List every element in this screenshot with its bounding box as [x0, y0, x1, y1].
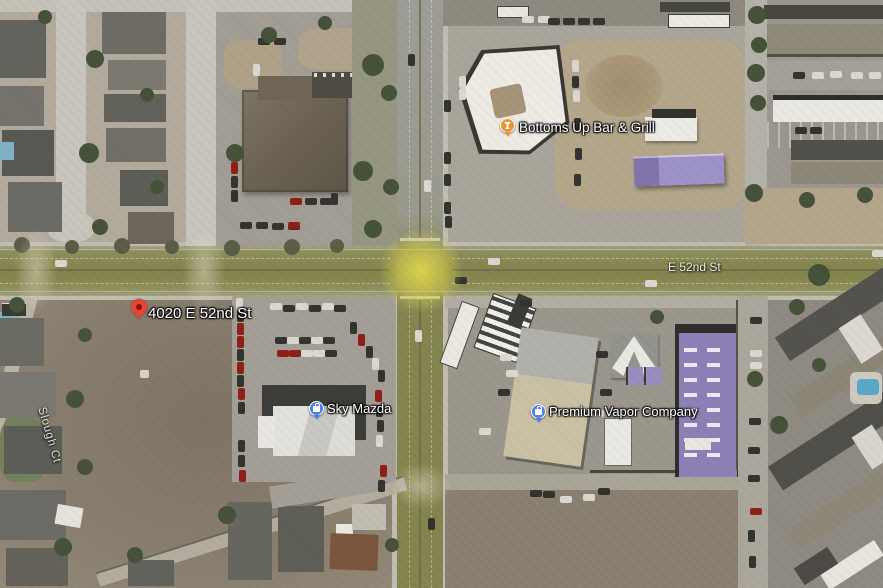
poi-label-sky-mazda[interactable]: Sky Mazda — [327, 402, 391, 415]
glare-spot — [182, 228, 226, 312]
road-label-e-52nd-st: E 52nd St — [668, 261, 721, 273]
apartment-building — [791, 140, 883, 160]
fence — [736, 300, 738, 470]
lane-marking — [419, 0, 421, 238]
building-purple-retail — [634, 153, 725, 186]
house — [108, 60, 166, 90]
trailer — [668, 14, 730, 28]
driveway — [352, 504, 386, 530]
drink-glass-icon — [504, 122, 511, 129]
address-label: 4020 E 52nd St — [148, 306, 251, 321]
poi-label-bottoms-up[interactable]: Bottoms Up Bar & Grill — [519, 121, 655, 135]
house — [104, 94, 166, 122]
trees-layer — [0, 0, 14, 14]
red-pin-icon — [128, 296, 151, 319]
house — [128, 560, 174, 586]
house — [128, 212, 174, 244]
lane-marking — [452, 258, 883, 259]
house — [6, 548, 68, 586]
intersection-glow — [377, 227, 465, 315]
swimming-pool — [0, 142, 14, 160]
house — [0, 86, 44, 126]
pin-pointer — [505, 132, 511, 137]
house — [278, 506, 324, 572]
shopping-bag-icon — [313, 406, 320, 412]
house — [0, 318, 44, 366]
debris — [140, 370, 149, 378]
poi-marker-bottoms-up[interactable] — [500, 118, 515, 133]
shed — [54, 504, 83, 528]
apartment-building — [791, 162, 883, 184]
grass-strip — [352, 0, 397, 246]
poi-marker-sky-mazda[interactable] — [309, 401, 324, 416]
shopping-pin-icon — [531, 404, 546, 419]
apartment-building — [773, 95, 883, 124]
lane-marking — [409, 300, 410, 588]
building-wing — [258, 76, 312, 100]
building-purple-unit — [626, 367, 643, 385]
pin-pointer — [536, 418, 542, 423]
trailer — [497, 6, 529, 18]
shopping-bag-icon — [535, 409, 542, 415]
house — [8, 182, 62, 232]
pin-dot — [135, 303, 143, 311]
lane-marking — [431, 0, 432, 238]
building-purple-unit — [644, 367, 662, 385]
house — [329, 533, 378, 571]
trailer — [660, 2, 730, 12]
satellite-map-canvas[interactable]: Bottoms Up Bar & Grill 4020 E 52nd St E … — [0, 0, 883, 588]
swimming-pool — [857, 379, 879, 395]
house — [120, 170, 168, 206]
lane-marking — [409, 0, 410, 238]
building-white-small — [604, 418, 632, 466]
sidewalk — [443, 0, 448, 242]
address-pin[interactable] — [131, 299, 147, 315]
building-office — [242, 90, 348, 192]
street — [186, 0, 216, 246]
lane-marking — [431, 300, 432, 588]
lane-marking — [419, 300, 421, 588]
house — [102, 12, 166, 54]
building-annex — [685, 438, 711, 450]
lane-marking — [452, 283, 883, 284]
poi-marker-premium-vapor[interactable] — [531, 404, 546, 419]
house — [0, 20, 46, 78]
parking-lot — [767, 60, 883, 90]
apartment-building — [764, 5, 883, 19]
poi-label-premium-vapor[interactable]: Premium Vapor Company — [549, 405, 698, 418]
street — [738, 296, 768, 588]
building-annex — [258, 416, 275, 448]
shopping-pin-icon — [309, 401, 324, 416]
pin-pointer — [314, 415, 320, 420]
glare-spot — [390, 462, 452, 510]
dirt-mound — [585, 55, 663, 117]
house — [106, 128, 166, 162]
glare-spot — [14, 228, 58, 312]
bar-grill-pin-icon — [500, 118, 515, 133]
dirt-patch — [745, 188, 883, 244]
building-roof-dark — [652, 109, 696, 118]
house — [228, 502, 272, 580]
dirt-lot-south — [445, 488, 743, 588]
apartment-building — [767, 24, 883, 57]
